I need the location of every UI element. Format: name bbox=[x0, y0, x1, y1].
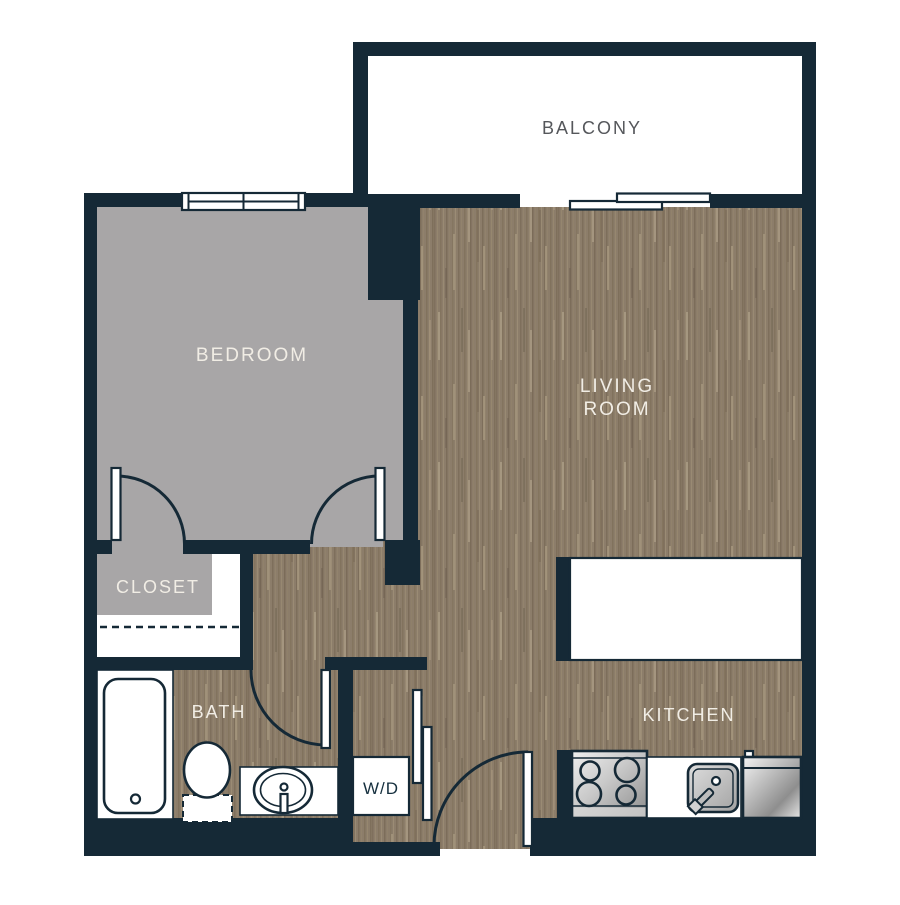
entry-threshold bbox=[440, 842, 530, 849]
bypass-panel-1 bbox=[413, 690, 422, 783]
wall-bottom-left bbox=[84, 842, 440, 856]
wall-bottom-right bbox=[530, 842, 816, 856]
bedroom-window bbox=[182, 193, 305, 210]
kitchen-label: KITCHEN bbox=[642, 705, 735, 725]
floor-plan: BALCONY BEDROOM LIVING ROOM CLOSET BATH … bbox=[0, 0, 900, 900]
bypass-panel-2 bbox=[423, 727, 432, 820]
wall-bedroom-bottom-stub bbox=[385, 540, 420, 585]
wall-balcony-right bbox=[802, 42, 816, 195]
wall-balcony-left bbox=[353, 42, 368, 207]
wall-laundry-left bbox=[338, 657, 353, 842]
faucet-stem bbox=[281, 794, 288, 813]
bedroom-door2-opening bbox=[310, 540, 383, 547]
door-leaf bbox=[112, 468, 121, 540]
wall-top-living-right bbox=[710, 194, 802, 208]
bedroom-door1-opening bbox=[112, 540, 183, 554]
kitchen-island bbox=[570, 558, 802, 660]
living-room-label-line1: LIVING bbox=[580, 376, 654, 397]
sliding-panel-outer bbox=[617, 194, 710, 203]
wall-bedroom-living bbox=[403, 300, 418, 540]
wall-kitchen-stub bbox=[557, 750, 572, 842]
toilet-bowl bbox=[184, 743, 230, 798]
bath-label: BATH bbox=[192, 702, 247, 722]
faucet-knob bbox=[281, 784, 288, 791]
wall-top-bedroom-left bbox=[84, 193, 182, 207]
balcony-label: BALCONY bbox=[542, 118, 642, 138]
toilet bbox=[183, 743, 232, 823]
bedroom-label: BEDROOM bbox=[196, 345, 308, 366]
wall-top-living-left bbox=[368, 194, 520, 208]
living-room-label-line2: ROOM bbox=[583, 399, 650, 420]
toilet-tank bbox=[183, 795, 232, 822]
wall-kitchen-counter-band bbox=[533, 818, 802, 842]
wall-closet-right bbox=[240, 554, 253, 657]
bathtub bbox=[97, 670, 173, 819]
refrigerator bbox=[743, 751, 801, 818]
wall-bedroom-corner-block bbox=[368, 194, 420, 300]
kitchen-sink bbox=[647, 757, 741, 818]
bedroom-floor bbox=[97, 207, 368, 300]
laundry-label: W/D bbox=[363, 779, 399, 798]
wall-island-stub bbox=[556, 557, 570, 661]
wall-outer-right bbox=[802, 195, 816, 856]
door-leaf bbox=[322, 670, 331, 748]
wall-closet-bath bbox=[84, 657, 253, 670]
closet-shelf-area bbox=[97, 615, 240, 657]
wall-bedroom-bottom-mid bbox=[183, 540, 310, 554]
sink-drain bbox=[712, 777, 720, 785]
tub-drain bbox=[131, 795, 140, 804]
door-leaf bbox=[524, 752, 533, 846]
range-stove bbox=[572, 751, 647, 818]
vanity-sink bbox=[240, 767, 338, 815]
bedroom-floor-lower bbox=[97, 300, 403, 540]
closet-label: CLOSET bbox=[116, 577, 200, 597]
wall-bedroom-bottom-left bbox=[97, 540, 112, 554]
door-leaf bbox=[376, 468, 385, 540]
wall-balcony-top bbox=[353, 42, 816, 56]
wall-outer-left bbox=[84, 193, 97, 856]
closet-side-strip bbox=[212, 554, 240, 615]
floor-plan-page: BALCONY BEDROOM LIVING ROOM CLOSET BATH … bbox=[0, 0, 900, 900]
